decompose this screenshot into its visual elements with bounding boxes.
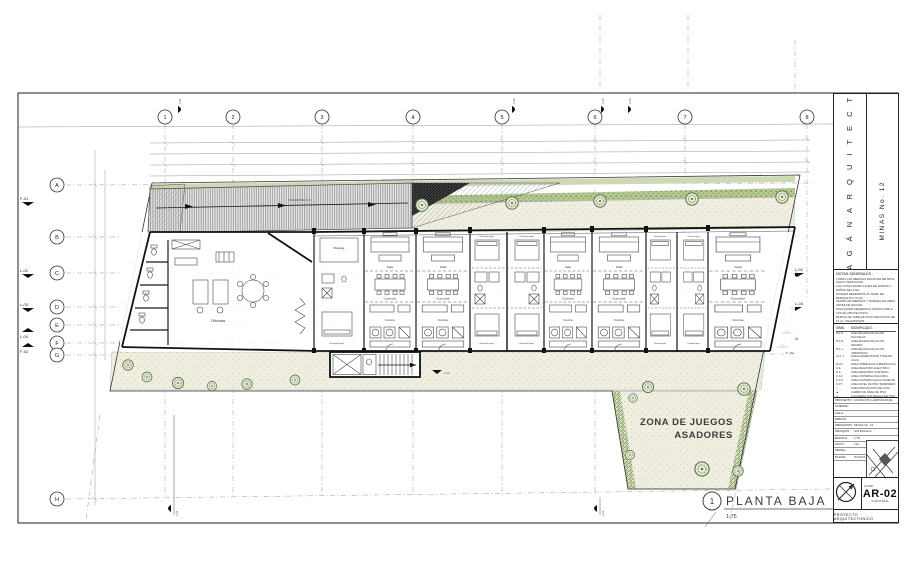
svg-text:L-02: L-02 <box>795 267 804 272</box>
svg-text:C-04: C-04 <box>628 98 632 104</box>
svg-text:D: D <box>55 305 59 311</box>
svg-text:L-03: L-03 <box>795 301 804 306</box>
sheet-code: AR-02 <box>863 488 897 500</box>
left-section-markers: F-01 L-02 L-03 L-04 F-02 <box>20 196 34 354</box>
notes-body: TODAS LAS MEDIDAS ESTAN EN METROS, SALVO… <box>836 278 896 325</box>
boundary-extension-lines <box>600 15 795 93</box>
view-title-text: PLANTA BAJA <box>726 494 826 508</box>
svg-text:B: B <box>55 235 59 241</box>
legend-head-desc: SIGNIFICADO : <box>851 326 896 330</box>
location-map <box>866 440 898 477</box>
view-scale: 1:75 <box>726 514 737 520</box>
legend-rows: B.A.P.LINEA BAJADA DE AGUAS PLUVIALES B.… <box>836 332 896 398</box>
svg-text:H: H <box>55 497 59 503</box>
floor-plan-canvas: Sala Comedor Cocina Recámara ppal. Recám… <box>0 0 915 571</box>
room-label-oficinas: Oficinas <box>211 318 225 323</box>
svg-text:C-01: C-01 <box>178 98 182 104</box>
svg-text:ASADORES: ASADORES <box>674 430 733 441</box>
grid-bubble-4: 4 <box>411 115 414 121</box>
titleblock-notes: NOTAS GENERALES : TODAS LAS MEDIDAS ESTA… <box>834 270 898 324</box>
view-title: 1 PLANTA BAJA 1:75 <box>703 492 836 527</box>
walkway-level-label: L-01 <box>444 371 450 375</box>
svg-text:L-01: L-01 <box>175 510 179 516</box>
north-arrow <box>834 478 862 509</box>
firm-name: B A R R A G Á N A R Q U I T E C T O S S.… <box>845 94 854 270</box>
top-section-flags: C-01 C-02 C-03 C-04 <box>178 98 632 113</box>
project-name: MINAS No. 12 <box>879 181 886 241</box>
grid-bubble-5: 5 <box>500 115 503 121</box>
notes-title: NOTAS GENERALES : <box>836 272 896 276</box>
grid-bubble-1: 1 <box>163 115 166 121</box>
svg-text:C: C <box>55 271 59 277</box>
titleblock-firm-cell: B A R R A G Á N A R Q U I T E C T O S S.… <box>834 94 898 270</box>
svg-text:C-02: C-02 <box>512 98 516 104</box>
view-number: 1 <box>710 497 715 506</box>
svg-text:L-02: L-02 <box>20 268 29 273</box>
svg-text:L-04: L-04 <box>20 334 29 339</box>
sheet-caption: PLANTA BAJA <box>872 500 889 503</box>
svg-text:G: G <box>55 353 59 359</box>
svg-text:E: E <box>55 323 59 329</box>
titleblock-footer: PROYECTO ARQUITECTONICO <box>834 510 898 524</box>
svg-text:ZONA DE JUEGOS: ZONA DE JUEGOS <box>640 417 733 428</box>
svg-text:L-01: L-01 <box>601 510 605 516</box>
grid-bubble-2: 2 <box>231 115 234 121</box>
grid-bubble-8: 8 <box>805 115 808 121</box>
svg-text:L-03: L-03 <box>20 302 29 307</box>
titleblock: B A R R A G Á N A R Q U I T E C T O S S.… <box>833 93 899 523</box>
svg-text:F-02: F-02 <box>20 349 29 354</box>
grid-bubble-6: 6 <box>593 115 596 121</box>
titleblock-sheet-cell: CLAVE : AR-02 PLANTA BAJA <box>834 478 898 510</box>
legend-head-sym: SIMB. <box>836 326 851 330</box>
drawing-sheet: { "sheet": { "view_number": "1", "view_t… <box>0 0 915 571</box>
svg-text:F-01: F-01 <box>20 196 29 201</box>
titleblock-fields: PROYECTO :CONJUNTO HABITACIONAL CLIENTE … <box>834 398 898 478</box>
titleblock-legend: SIMB. SIGNIFICADO : B.A.P.LINEA BAJADA D… <box>834 324 898 398</box>
grid-bubble-7: 7 <box>683 115 686 121</box>
grid-bubble-3: 3 <box>320 115 323 121</box>
svg-text:C-03: C-03 <box>601 98 605 104</box>
ramp-slope-label: PENDIENTE 15 % <box>289 198 311 202</box>
grid-bubble-A: A <box>55 183 59 189</box>
